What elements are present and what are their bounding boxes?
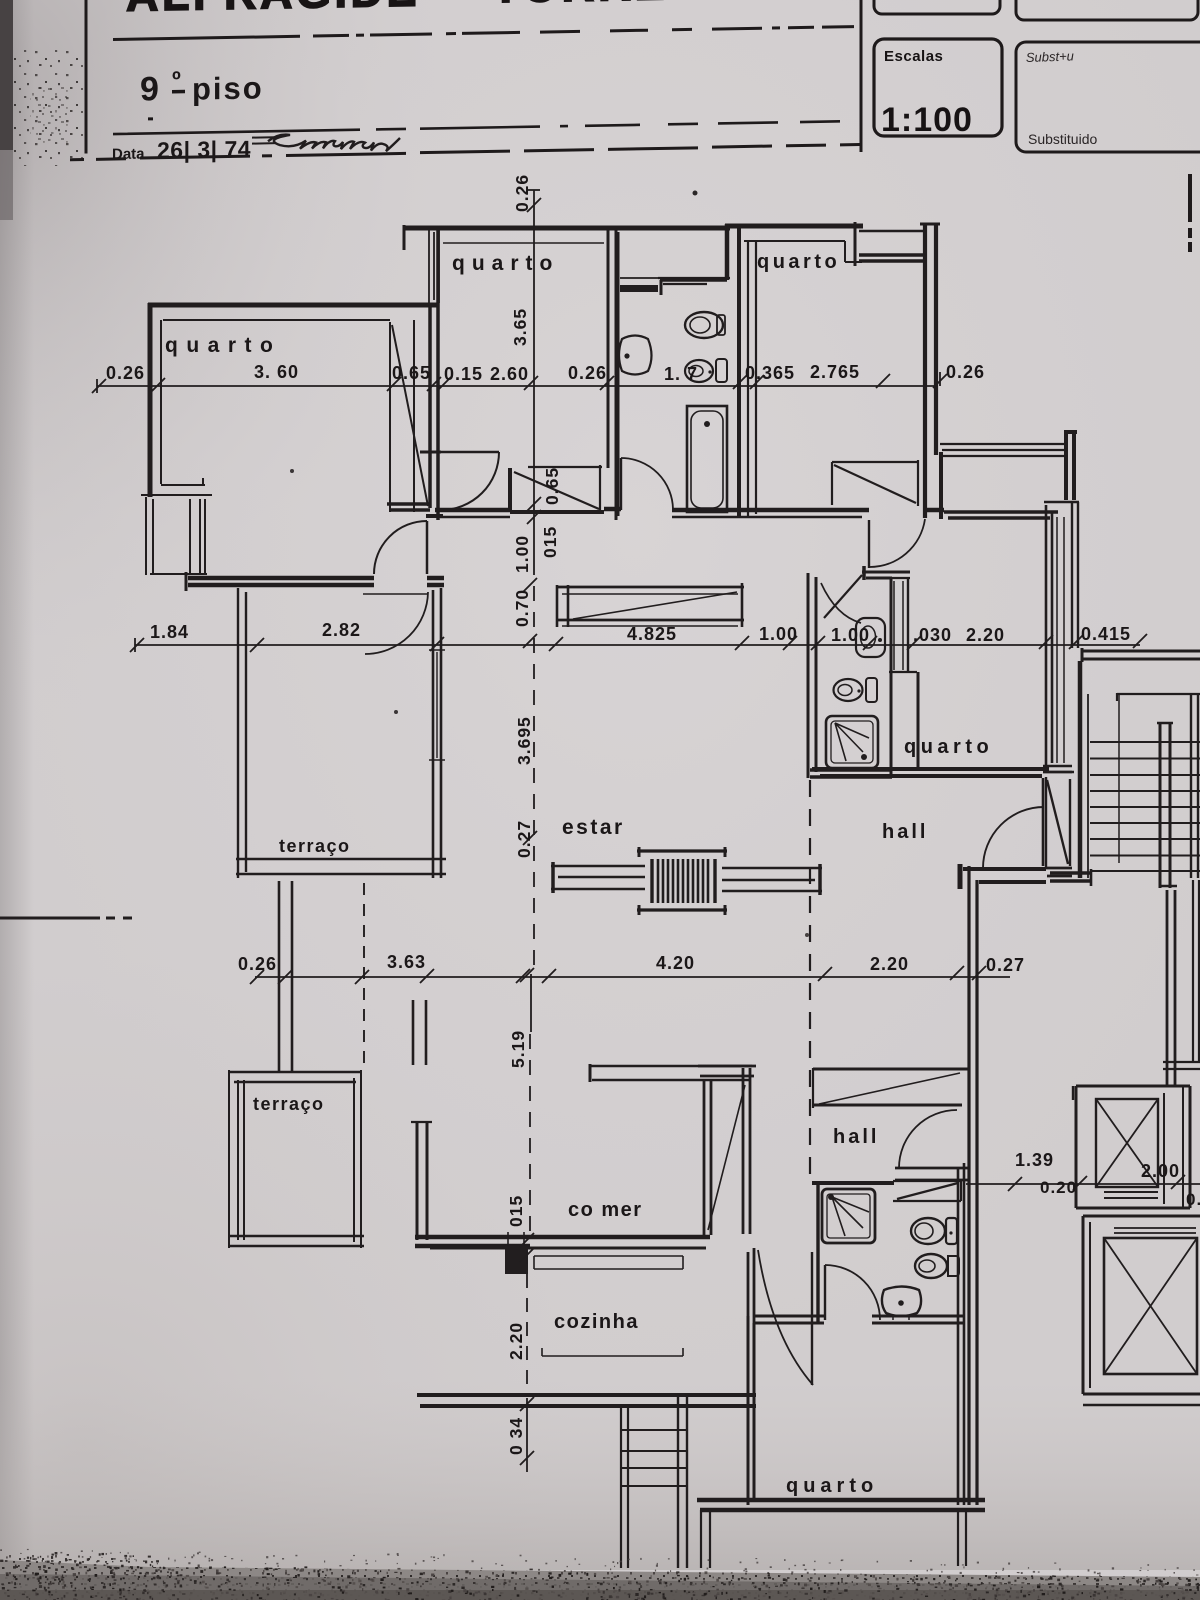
svg-text:0.15: 0.15	[444, 364, 483, 384]
svg-text:2.20: 2.20	[506, 1322, 526, 1360]
svg-text:1. 7: 1. 7	[664, 364, 698, 384]
svg-text:1.84: 1.84	[150, 622, 189, 642]
svg-text:1:100: 1:100	[881, 101, 973, 139]
svg-text:Substituido: Substituido	[1028, 131, 1097, 147]
svg-text:quarto: quarto	[165, 334, 281, 357]
svg-text:.030: .030	[913, 625, 952, 645]
svg-text:quarto: quarto	[757, 251, 840, 273]
svg-text:3.63: 3.63	[387, 952, 426, 972]
svg-text:estar: estar	[562, 816, 625, 839]
svg-text:2.00: 2.00	[1141, 1161, 1180, 1181]
svg-text:015: 015	[506, 1195, 526, 1227]
svg-text:5.19: 5.19	[508, 1030, 528, 1068]
svg-text:3.65: 3.65	[510, 308, 530, 346]
svg-text:hall: hall	[833, 1126, 879, 1148]
svg-text:0.26: 0.26	[568, 363, 607, 383]
svg-text:4.20: 4.20	[656, 953, 695, 973]
svg-text:0.2: 0.2	[1186, 1190, 1200, 1209]
svg-text:1.00: 1.00	[512, 535, 532, 573]
svg-text:cozinha: cozinha	[554, 1311, 639, 1333]
svg-text:9: 9	[140, 70, 159, 108]
svg-text:Escalas: Escalas	[884, 48, 943, 65]
svg-text:26| 3| 74: 26| 3| 74	[157, 136, 251, 164]
svg-text:0.65: 0.65	[392, 363, 431, 383]
svg-text:0 34: 0 34	[506, 1417, 526, 1455]
svg-text:terraço: terraço	[279, 836, 351, 856]
svg-text:1.00: 1.00	[831, 625, 870, 645]
svg-text:015: 015	[540, 526, 560, 558]
svg-text:2.82: 2.82	[322, 620, 361, 640]
svg-text:Subst+u: Subst+u	[1026, 48, 1075, 65]
svg-text:4.825: 4.825	[627, 624, 677, 644]
svg-text:0.26: 0.26	[946, 362, 985, 382]
svg-text:0.70: 0.70	[512, 589, 532, 627]
svg-text:0.365: 0.365	[745, 363, 795, 383]
svg-text:0.26: 0.26	[106, 363, 145, 383]
svg-text:0.65: 0.65	[542, 467, 562, 505]
svg-text:0.26: 0.26	[512, 174, 532, 212]
svg-text:0.27: 0.27	[514, 820, 534, 858]
svg-text:2.765: 2.765	[810, 362, 860, 382]
svg-text:2.20: 2.20	[870, 954, 909, 974]
svg-text:3. 60: 3. 60	[254, 362, 299, 382]
svg-text:hall: hall	[882, 821, 928, 843]
svg-text:2.20: 2.20	[966, 625, 1005, 645]
svg-text:quarto: quarto	[452, 252, 559, 275]
svg-text:piso: piso	[192, 70, 264, 106]
svg-text:3.695: 3.695	[514, 716, 534, 765]
svg-text:2.60: 2.60	[490, 364, 529, 384]
svg-text:quarto: quarto	[786, 1475, 878, 1497]
svg-text:terraço: terraço	[253, 1094, 325, 1114]
svg-text:0.415: 0.415	[1081, 624, 1131, 644]
svg-text:1.00: 1.00	[759, 624, 798, 644]
svg-text:0.26: 0.26	[238, 954, 277, 974]
svg-text:3: 3	[668, 0, 693, 8]
svg-text:co mer: co mer	[568, 1199, 643, 1221]
svg-text:quarto: quarto	[904, 736, 993, 758]
svg-text:0.27: 0.27	[986, 955, 1025, 975]
svg-text:1.39: 1.39	[1015, 1150, 1054, 1170]
svg-text:0.20: 0.20	[1040, 1178, 1077, 1197]
